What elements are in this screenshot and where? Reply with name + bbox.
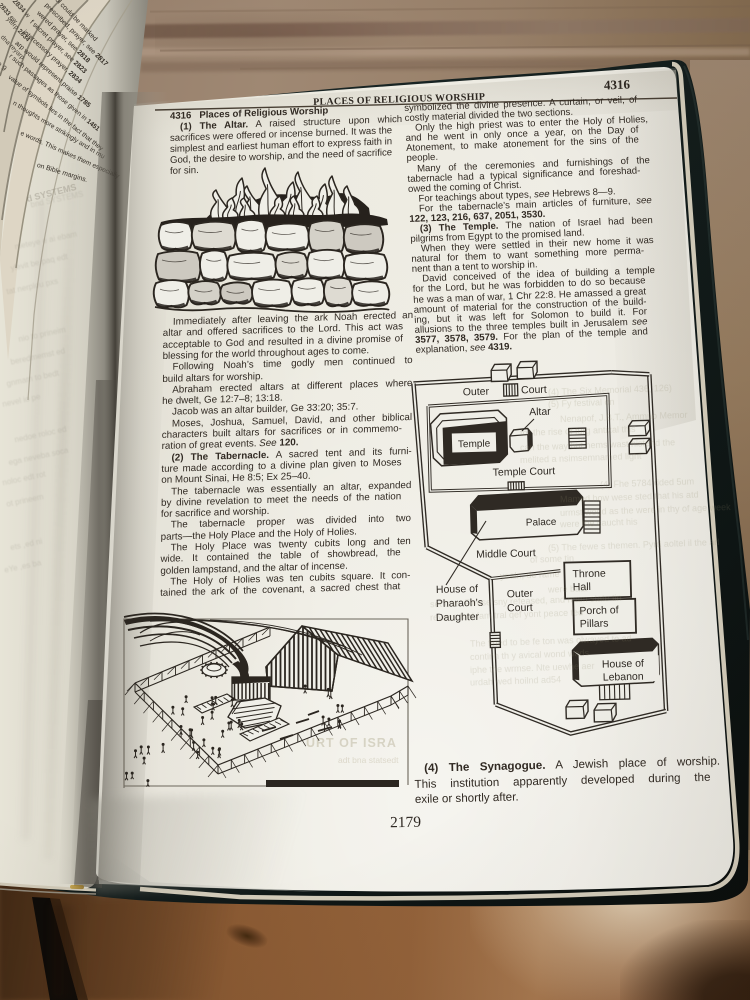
svg-text:Temple Court: Temple Court bbox=[493, 465, 556, 479]
svg-text:URT OF ISRA: URT OF ISRA bbox=[306, 736, 397, 750]
svg-text:Court: Court bbox=[521, 384, 547, 397]
svg-text:Outer: Outer bbox=[463, 386, 490, 399]
svg-text:Temple: Temple bbox=[458, 439, 491, 451]
svg-text:Palace: Palace bbox=[526, 517, 557, 529]
svg-text:Porch of: Porch of bbox=[579, 604, 618, 617]
svg-text:Throne: Throne bbox=[572, 568, 606, 581]
svg-text:House of: House of bbox=[436, 583, 478, 596]
svg-text:Pillars: Pillars bbox=[580, 617, 609, 630]
svg-text:adt bna statsedt: adt bna statsedt bbox=[338, 755, 399, 765]
svg-text:House of: House of bbox=[602, 658, 644, 671]
svg-text:Lebanon: Lebanon bbox=[603, 671, 644, 684]
svg-text:Middle Court: Middle Court bbox=[476, 547, 536, 561]
